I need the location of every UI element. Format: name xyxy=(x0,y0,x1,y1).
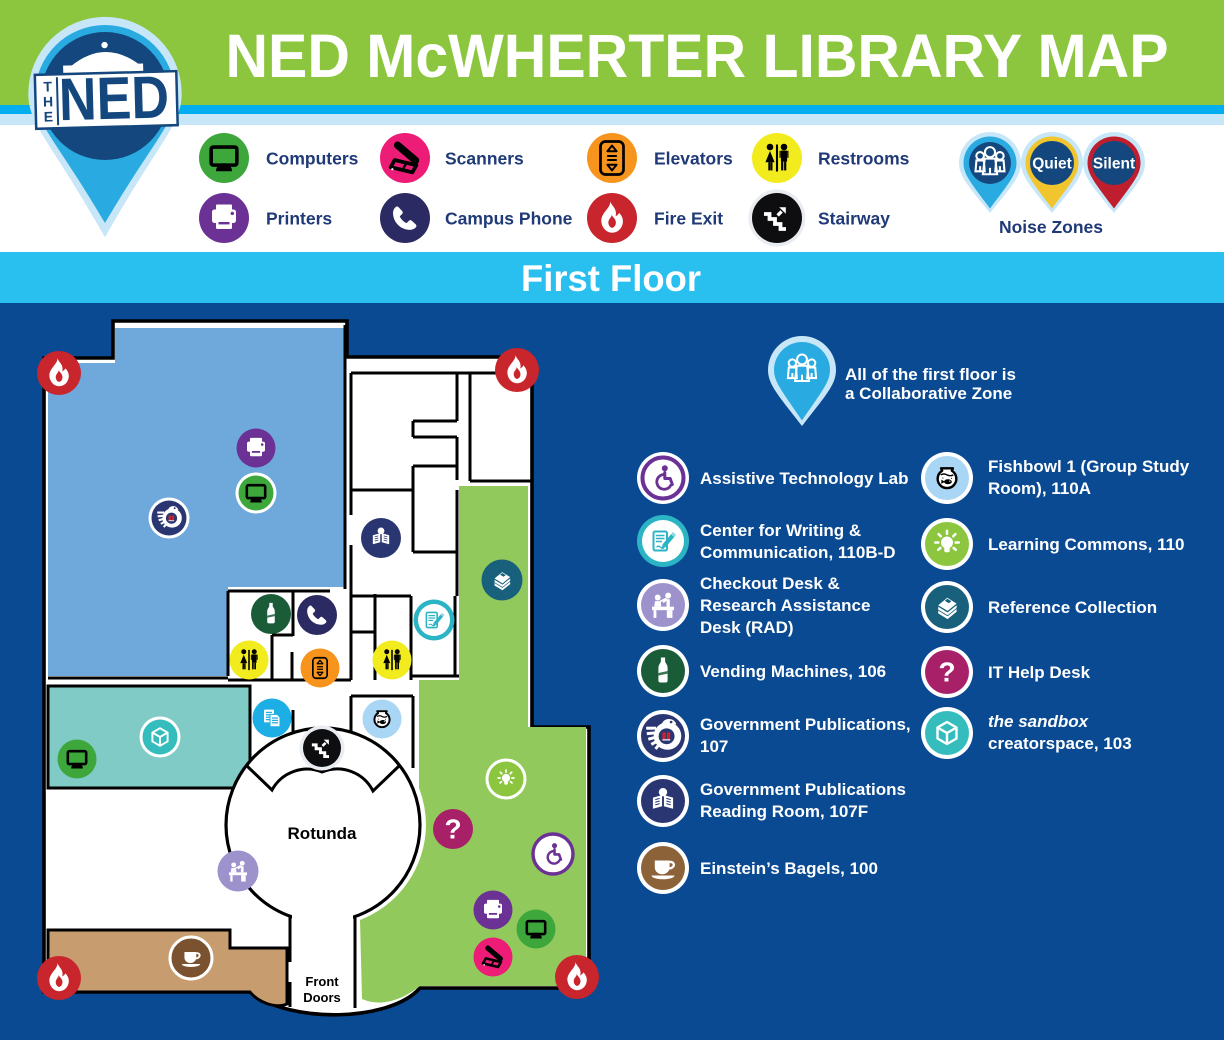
svg-text:Scanners: Scanners xyxy=(445,149,524,169)
svg-text:Learning Commons, 110: Learning Commons, 110 xyxy=(988,535,1185,554)
svg-text:H: H xyxy=(43,93,54,109)
svg-text:Stairway: Stairway xyxy=(818,209,890,229)
svg-text:Research Assistance: Research Assistance xyxy=(700,596,870,615)
svg-text:Vending Machines, 106: Vending Machines, 106 xyxy=(700,662,886,681)
svg-text:All of the first floor is: All of the first floor is xyxy=(845,365,1016,384)
svg-text:Printers: Printers xyxy=(266,209,332,229)
svg-text:Computers: Computers xyxy=(266,149,359,169)
svg-text:Noise Zones: Noise Zones xyxy=(999,217,1103,237)
svg-text:First Floor: First Floor xyxy=(521,258,701,299)
svg-text:Einstein’s Bagels, 100: Einstein’s Bagels, 100 xyxy=(700,859,878,878)
svg-text:Fire Exit: Fire Exit xyxy=(654,209,723,229)
svg-text:Desk (RAD): Desk (RAD) xyxy=(700,618,794,637)
svg-text:Room), 110A: Room), 110A xyxy=(988,479,1091,498)
svg-text:Government Publications: Government Publications xyxy=(700,780,906,799)
svg-text:Checkout Desk &: Checkout Desk & xyxy=(700,574,840,593)
svg-text:Front: Front xyxy=(305,974,339,989)
svg-text:creatorspace, 103: creatorspace, 103 xyxy=(988,734,1132,753)
svg-text:Government Publications,: Government Publications, xyxy=(700,715,911,734)
svg-text:T: T xyxy=(43,78,52,94)
svg-text:Communication, 110B-D: Communication, 110B-D xyxy=(700,543,896,562)
svg-text:NED: NED xyxy=(58,63,170,133)
svg-text:Center for Writing &: Center for Writing & xyxy=(700,521,861,540)
svg-text:Restrooms: Restrooms xyxy=(818,149,910,169)
svg-text:Elevators: Elevators xyxy=(654,149,733,169)
svg-text:Reading Room, 107F: Reading Room, 107F xyxy=(700,802,868,821)
svg-text:NED McWHERTER LIBRARY MAP: NED McWHERTER LIBRARY MAP xyxy=(226,22,1169,90)
svg-text:Silent: Silent xyxy=(1093,156,1135,173)
svg-text:Assistive Technology Lab: Assistive Technology Lab xyxy=(700,469,908,488)
svg-text:IT Help Desk: IT Help Desk xyxy=(988,663,1091,682)
svg-text:Campus Phone: Campus Phone xyxy=(445,209,573,229)
svg-text:Quiet: Quiet xyxy=(1032,156,1072,173)
svg-text:107: 107 xyxy=(700,737,728,756)
svg-text:a Collaborative Zone: a Collaborative Zone xyxy=(845,384,1012,403)
svg-text:Reference Collection: Reference Collection xyxy=(988,598,1157,617)
svg-text:Rotunda: Rotunda xyxy=(288,824,357,843)
svg-text:Doors: Doors xyxy=(303,990,341,1005)
svg-text:Fishbowl 1 (Group Study: Fishbowl 1 (Group Study xyxy=(988,457,1190,476)
svg-text:the sandbox: the sandbox xyxy=(988,712,1090,731)
svg-text:E: E xyxy=(44,108,54,124)
